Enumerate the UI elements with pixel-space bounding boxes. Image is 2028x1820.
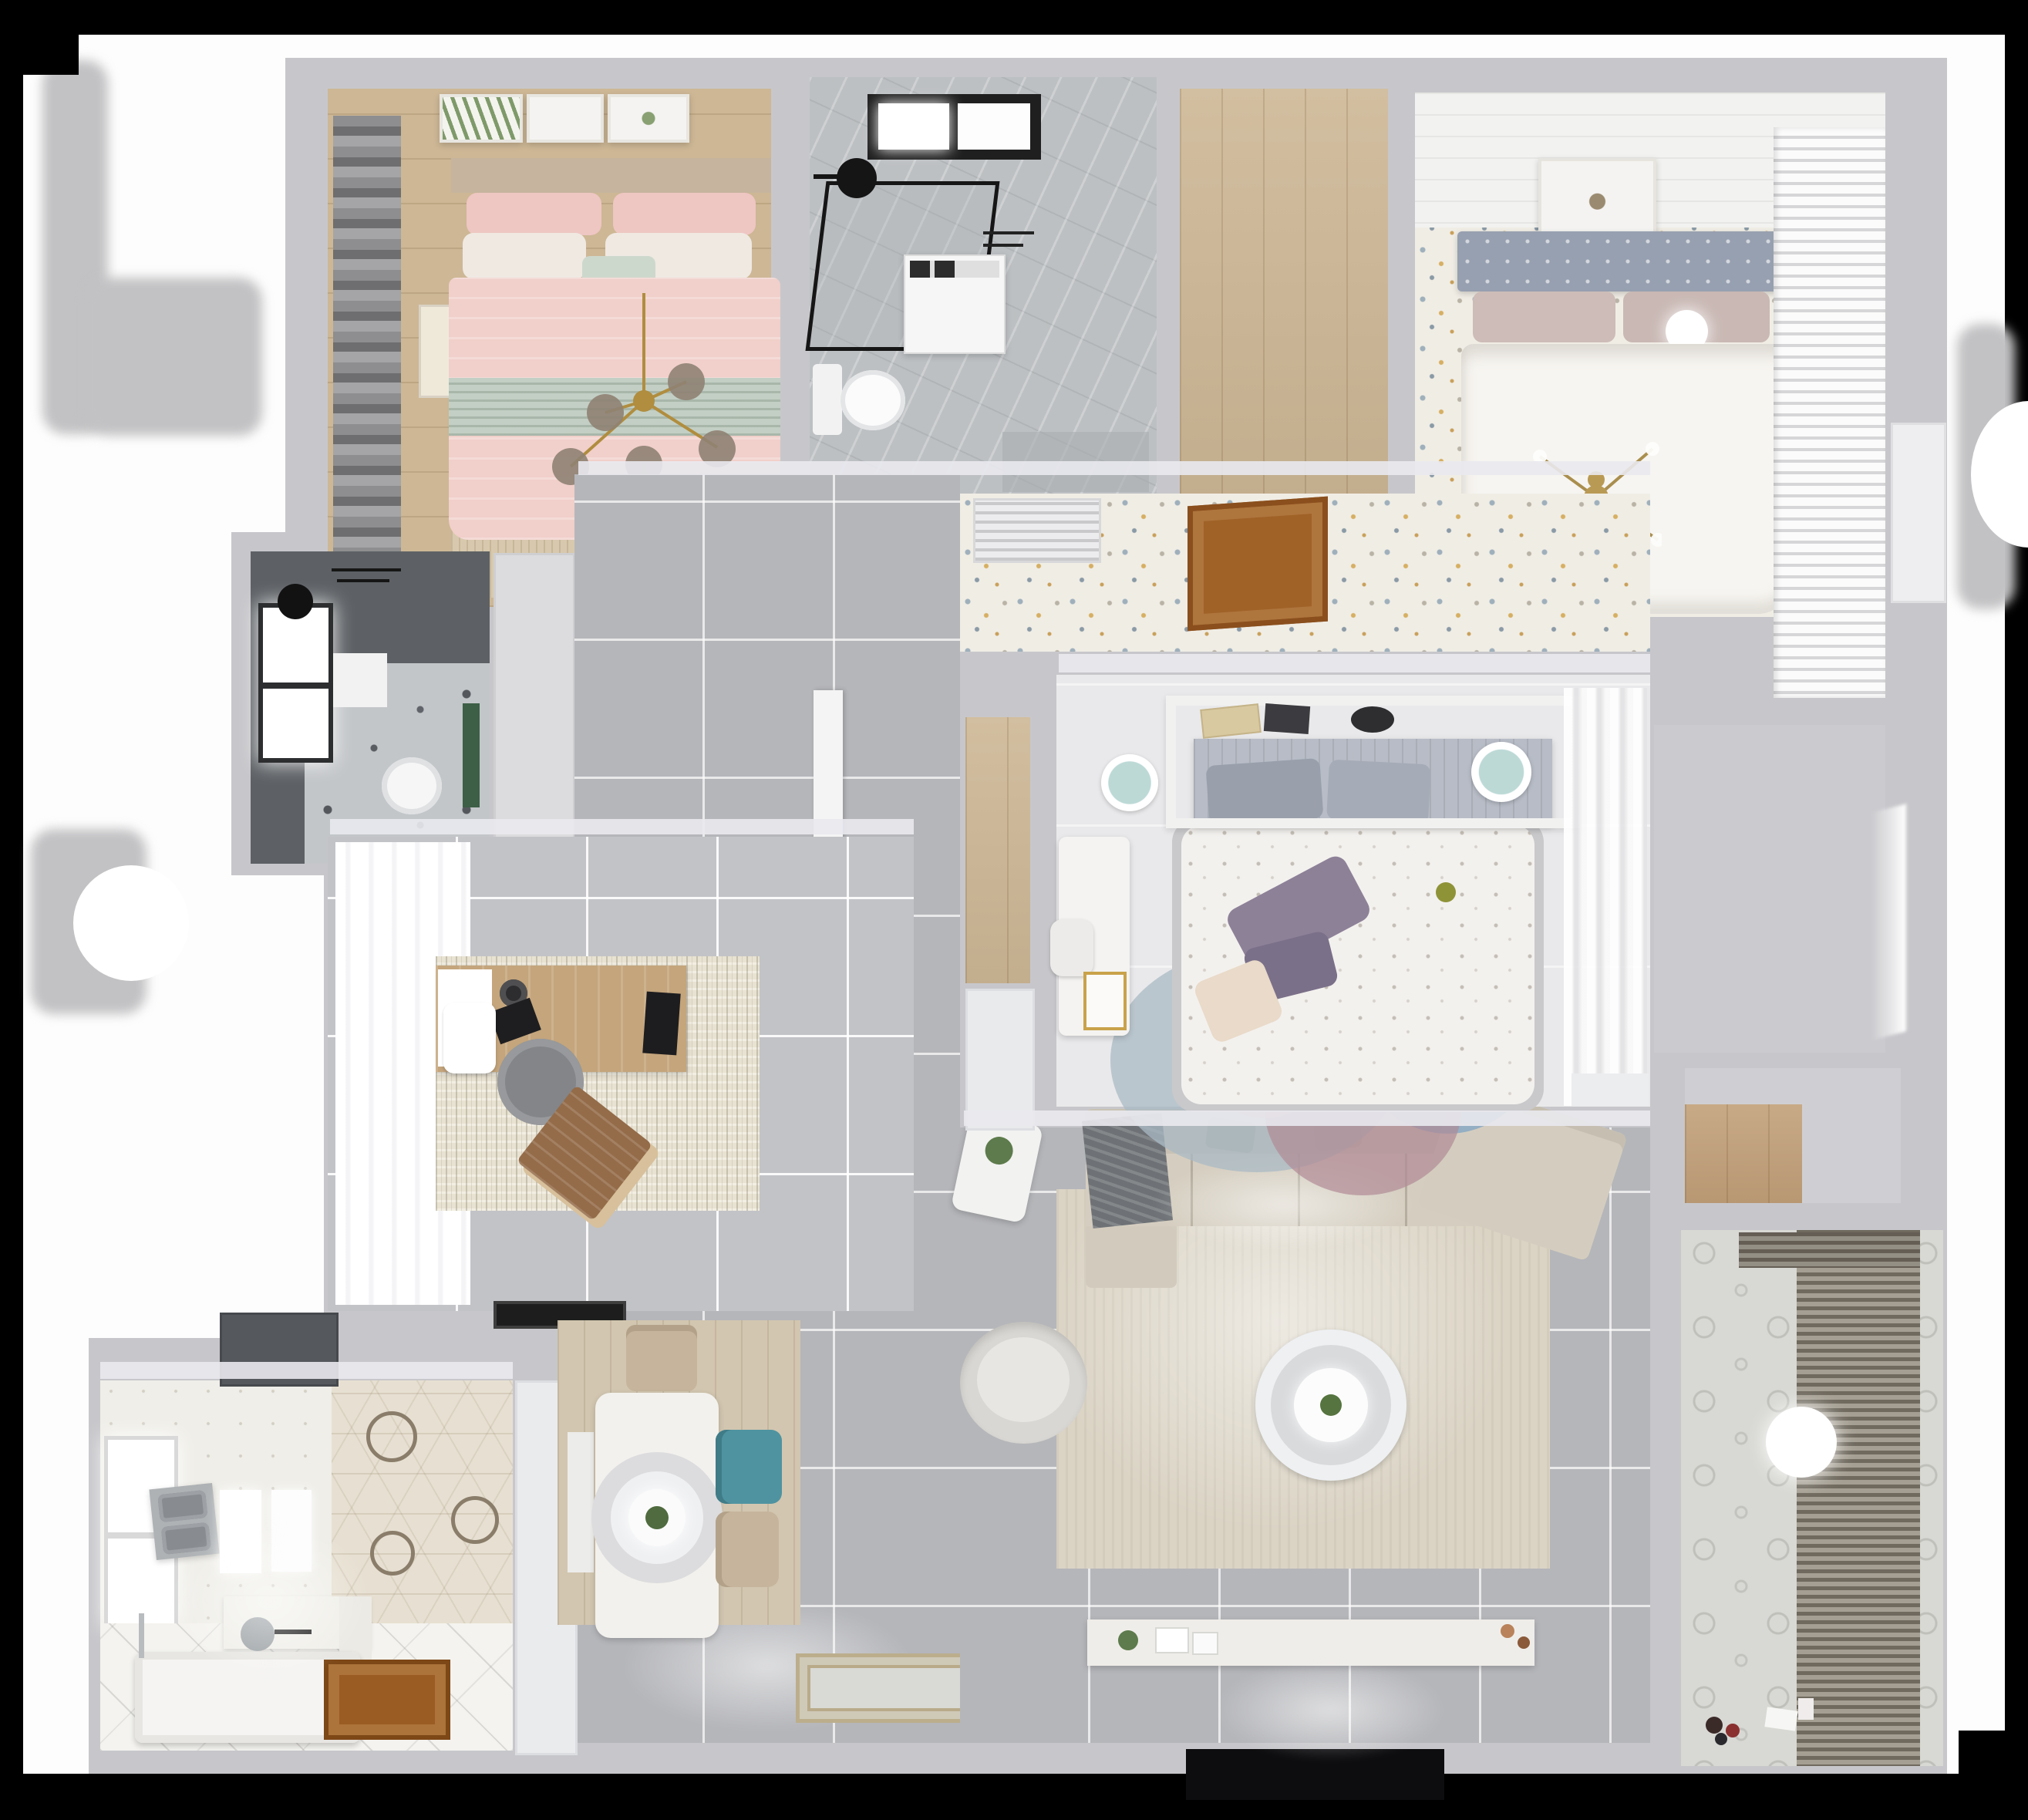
room-entry — [1654, 725, 1885, 1053]
towel-bar — [337, 579, 389, 582]
louvered-wardrobe — [1774, 127, 1885, 698]
room-closet — [1180, 89, 1388, 494]
shower-shelf — [983, 244, 1023, 247]
window — [258, 603, 333, 763]
plant — [982, 1134, 1016, 1168]
toilet-tank — [813, 364, 842, 435]
teal-pouf — [1101, 754, 1158, 811]
paper — [1764, 1707, 1797, 1731]
pillow — [613, 193, 756, 235]
wall-art-frame — [527, 94, 604, 143]
wall-art-frame — [608, 94, 689, 143]
teal-pouf — [1471, 742, 1531, 802]
toy — [1726, 1724, 1740, 1737]
frame-corner — [1959, 1731, 2005, 1774]
tub-spout — [275, 1630, 312, 1634]
room-niche — [1685, 1068, 1901, 1203]
room-dining — [540, 1311, 960, 1743]
wall-tv — [1186, 1749, 1444, 1800]
shower-shelf — [983, 231, 1034, 234]
desk-chair — [1050, 919, 1093, 976]
shower-arm — [814, 174, 844, 179]
slatted-blinds — [1797, 1230, 1920, 1766]
green-accent — [463, 703, 480, 807]
bed-headboard — [451, 158, 771, 193]
drying-rack-rail — [1739, 1232, 1920, 1268]
hex-motif — [366, 1411, 417, 1462]
side-chair — [443, 1003, 496, 1073]
gold-cart — [1083, 972, 1127, 1030]
monitor — [642, 992, 680, 1056]
plant — [1118, 1630, 1138, 1650]
room-bathroom-3 — [100, 1380, 513, 1751]
books — [1264, 703, 1310, 734]
wall-art-frame — [1538, 158, 1656, 238]
background-cutout — [73, 865, 189, 981]
bath-mat — [333, 653, 387, 707]
ac-vent — [973, 498, 1101, 563]
wall-highlight — [1059, 654, 1650, 672]
sink-basin — [161, 1522, 211, 1555]
wall-highlight — [578, 461, 1650, 475]
frame-corner — [23, 35, 79, 75]
toy — [1706, 1717, 1723, 1734]
washer-controls — [910, 261, 999, 278]
pillow — [1473, 292, 1615, 342]
towel-bar — [332, 568, 401, 571]
toy — [1715, 1733, 1727, 1745]
hex-motif — [370, 1531, 415, 1576]
armchair-seat — [977, 1337, 1070, 1422]
decor-box — [1192, 1632, 1218, 1655]
sink-basin — [157, 1490, 207, 1522]
plant — [1320, 1394, 1342, 1416]
ceiling-light — [1766, 1407, 1837, 1478]
bed-headboard — [1457, 231, 1797, 292]
room-bathroom-2 — [251, 551, 490, 864]
tub-filler — [139, 1613, 144, 1658]
bedroom-3-closet-front — [965, 989, 1035, 1131]
books — [1200, 703, 1262, 739]
wall-highlight — [964, 1111, 1650, 1126]
wall-highlight — [330, 819, 914, 834]
window-ledge — [1572, 1073, 1649, 1106]
washing-machine — [904, 254, 1006, 354]
hex-motif — [451, 1496, 499, 1544]
door-panel — [1891, 423, 1946, 603]
chair — [716, 1512, 779, 1587]
bed-duvet — [1181, 825, 1534, 1104]
bench — [568, 1432, 594, 1572]
wall-art-frame — [440, 94, 523, 143]
room-bathroom-1 — [810, 77, 1157, 494]
toilet — [382, 757, 442, 814]
room-bedroom-3 — [1056, 675, 1650, 1107]
wood-door — [324, 1660, 450, 1740]
curtain — [333, 116, 401, 586]
pillow — [463, 233, 586, 279]
tv-console — [1087, 1619, 1534, 1666]
room-living — [960, 1127, 1650, 1743]
open-wood-door — [1187, 497, 1328, 632]
decor-box — [1155, 1627, 1189, 1653]
room-corridor — [960, 494, 1650, 652]
toilet-bowl — [841, 370, 905, 430]
bedroom-3-oak-niche — [965, 717, 1030, 983]
cup — [1798, 1698, 1814, 1720]
skylight-pane — [878, 103, 949, 150]
room-study — [328, 837, 914, 1311]
olive-ornament — [1436, 882, 1456, 902]
plant-centerpiece — [645, 1506, 669, 1529]
mirror — [220, 1490, 261, 1573]
floorplan-render — [0, 0, 2028, 1820]
background-shadow — [85, 278, 262, 436]
wall-mixer — [241, 1617, 275, 1651]
wood-shelf — [1685, 1104, 1802, 1203]
bowl — [1351, 706, 1394, 733]
room-balcony — [1681, 1230, 1943, 1766]
chair — [626, 1325, 697, 1391]
mug — [1501, 1624, 1514, 1638]
front-door-light — [1871, 804, 1906, 1040]
mirror — [271, 1490, 312, 1572]
skylight-pane — [958, 103, 1030, 150]
pillow — [467, 193, 601, 235]
sheer-curtains — [1564, 688, 1647, 1106]
double-sink — [149, 1483, 219, 1560]
chair-teal — [716, 1430, 782, 1504]
wall-highlight — [100, 1362, 513, 1379]
ceiling-shower-head — [278, 584, 313, 619]
mug — [1518, 1636, 1530, 1649]
